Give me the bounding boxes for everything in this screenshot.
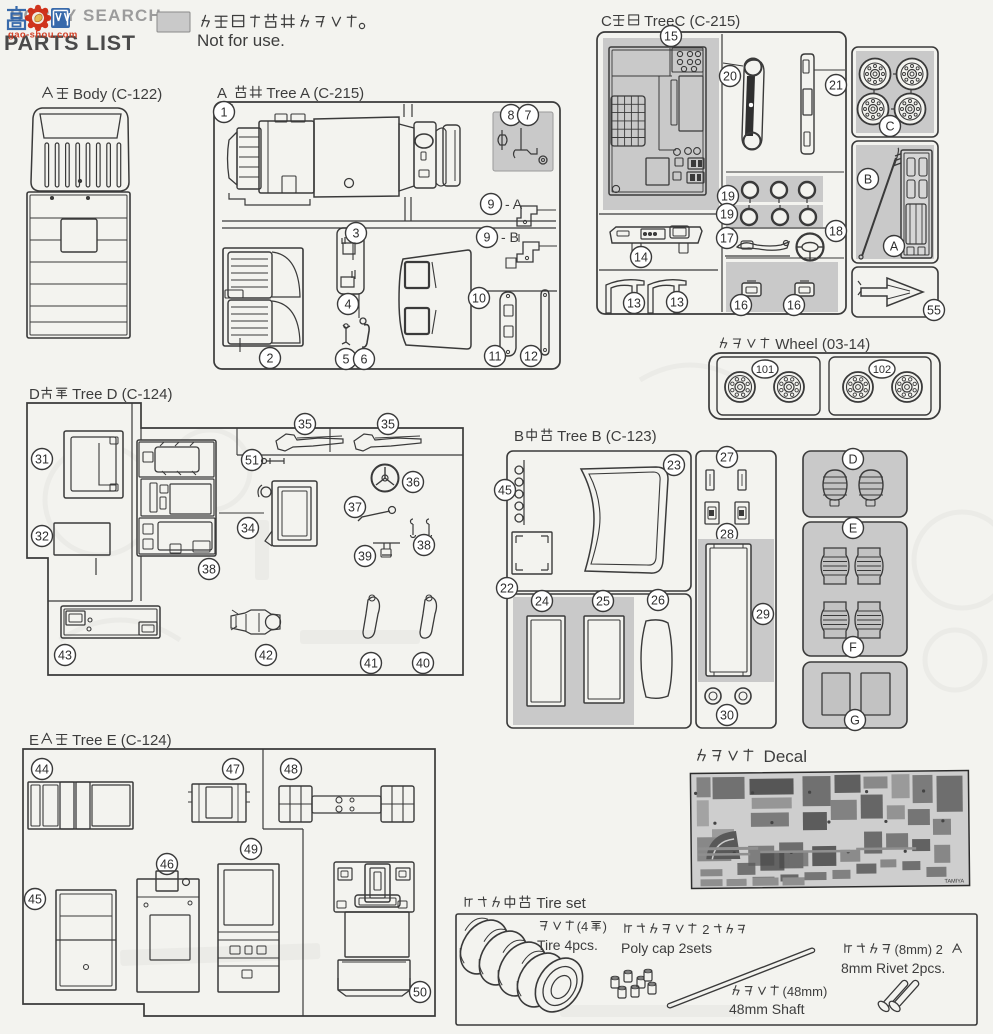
svg-text:Body (C-122): Body (C-122): [73, 86, 162, 103]
svg-text:39: 39: [358, 550, 372, 564]
svg-text:49: 49: [244, 843, 258, 857]
svg-text:G: G: [850, 714, 860, 728]
svg-text:Tree E (C-124): Tree E (C-124): [72, 732, 171, 749]
svg-text:43: 43: [58, 649, 72, 663]
svg-text:8mm Rivet 2pcs.: 8mm Rivet 2pcs.: [841, 960, 945, 976]
svg-text:22: 22: [500, 582, 514, 596]
svg-text:37: 37: [348, 501, 362, 515]
svg-text:9: 9: [484, 231, 491, 245]
svg-text:29: 29: [756, 608, 770, 622]
svg-text:55: 55: [927, 304, 941, 318]
svg-text:38: 38: [202, 563, 216, 577]
svg-text:10: 10: [472, 292, 486, 306]
svg-text:(4: (4: [577, 919, 589, 934]
svg-text:48mm Shaft: 48mm Shaft: [729, 1001, 805, 1017]
svg-text:101: 101: [756, 364, 774, 376]
svg-text:41: 41: [364, 657, 378, 671]
svg-text:C: C: [601, 13, 612, 30]
svg-text:F: F: [849, 641, 857, 655]
svg-text:48: 48: [284, 763, 298, 777]
svg-text:8: 8: [508, 109, 515, 123]
svg-text:- B: - B: [501, 229, 519, 245]
svg-text:24: 24: [535, 595, 549, 609]
svg-text:38: 38: [417, 539, 431, 553]
svg-text:23: 23: [667, 459, 681, 473]
svg-text:18: 18: [829, 225, 843, 239]
svg-text:45: 45: [28, 893, 42, 907]
svg-text:17: 17: [720, 232, 734, 246]
svg-text:35: 35: [381, 418, 395, 432]
svg-text:3: 3: [353, 227, 360, 241]
svg-text:Tire 4pcs.: Tire 4pcs.: [537, 937, 598, 953]
svg-text:TAMIYA: TAMIYA: [945, 879, 965, 885]
svg-text:9: 9: [488, 198, 495, 212]
svg-text:13: 13: [670, 296, 684, 310]
svg-text:45: 45: [498, 484, 512, 498]
svg-text:47: 47: [226, 763, 240, 777]
svg-text:30: 30: [720, 709, 734, 723]
svg-text:42: 42: [259, 649, 273, 663]
svg-text:Tree D (C-124): Tree D (C-124): [72, 386, 172, 403]
svg-text:7: 7: [525, 109, 532, 123]
svg-text:(48mm): (48mm): [783, 984, 828, 999]
svg-text:A: A: [217, 85, 227, 102]
svg-text:19: 19: [721, 190, 735, 204]
svg-text:16: 16: [734, 299, 748, 313]
svg-text:Decal: Decal: [764, 747, 807, 766]
svg-text:102: 102: [873, 364, 891, 376]
svg-text:A: A: [890, 240, 899, 254]
svg-text:E: E: [849, 522, 857, 536]
svg-text:50: 50: [413, 986, 427, 1000]
svg-text:2: 2: [702, 922, 709, 937]
svg-text:E: E: [29, 732, 39, 749]
svg-text:46: 46: [160, 858, 174, 872]
svg-text:Poly cap 2sets: Poly cap 2sets: [621, 940, 712, 956]
svg-text:15: 15: [664, 30, 678, 44]
svg-text:40: 40: [416, 657, 430, 671]
svg-text:11: 11: [489, 350, 502, 364]
svg-text:B: B: [864, 173, 872, 187]
svg-text:34: 34: [241, 522, 255, 536]
svg-text:32: 32: [35, 530, 49, 544]
svg-text:Tree A (C-215): Tree A (C-215): [266, 85, 364, 102]
svg-text:(8mm) 2: (8mm) 2: [895, 942, 943, 957]
svg-text:26: 26: [651, 594, 665, 608]
svg-text:C: C: [885, 120, 894, 134]
svg-text:13: 13: [627, 297, 641, 311]
svg-text:35: 35: [298, 418, 312, 432]
svg-text:): ): [603, 919, 607, 934]
svg-text:2: 2: [267, 352, 274, 366]
svg-text:D: D: [29, 386, 40, 403]
svg-text:25: 25: [596, 595, 610, 609]
svg-text:16: 16: [787, 299, 801, 313]
svg-text:14: 14: [634, 251, 648, 265]
svg-text:21: 21: [829, 79, 843, 93]
svg-text:20: 20: [723, 70, 737, 84]
svg-text:B: B: [514, 428, 524, 445]
svg-text:D: D: [848, 453, 857, 467]
svg-text:Tree B (C-123): Tree B (C-123): [557, 428, 656, 445]
svg-text:12: 12: [524, 350, 538, 364]
svg-text:5: 5: [343, 353, 350, 367]
svg-text:4: 4: [345, 298, 352, 312]
svg-text:Tire set: Tire set: [536, 895, 586, 912]
svg-text:6: 6: [361, 353, 368, 367]
svg-text:Not for use.: Not for use.: [197, 31, 285, 50]
svg-text:gao-shou.com: gao-shou.com: [8, 30, 78, 41]
svg-text:- A: - A: [505, 196, 523, 212]
svg-text:Wheel (03-14): Wheel (03-14): [775, 336, 870, 353]
svg-text:44: 44: [35, 763, 49, 777]
svg-text:51: 51: [245, 454, 259, 468]
svg-text:27: 27: [720, 451, 734, 465]
svg-text:1: 1: [221, 106, 228, 120]
svg-text:31: 31: [35, 453, 49, 467]
svg-text:36: 36: [406, 476, 420, 490]
svg-text:TreeC (C-215): TreeC (C-215): [644, 13, 740, 30]
svg-text:19: 19: [720, 208, 734, 222]
